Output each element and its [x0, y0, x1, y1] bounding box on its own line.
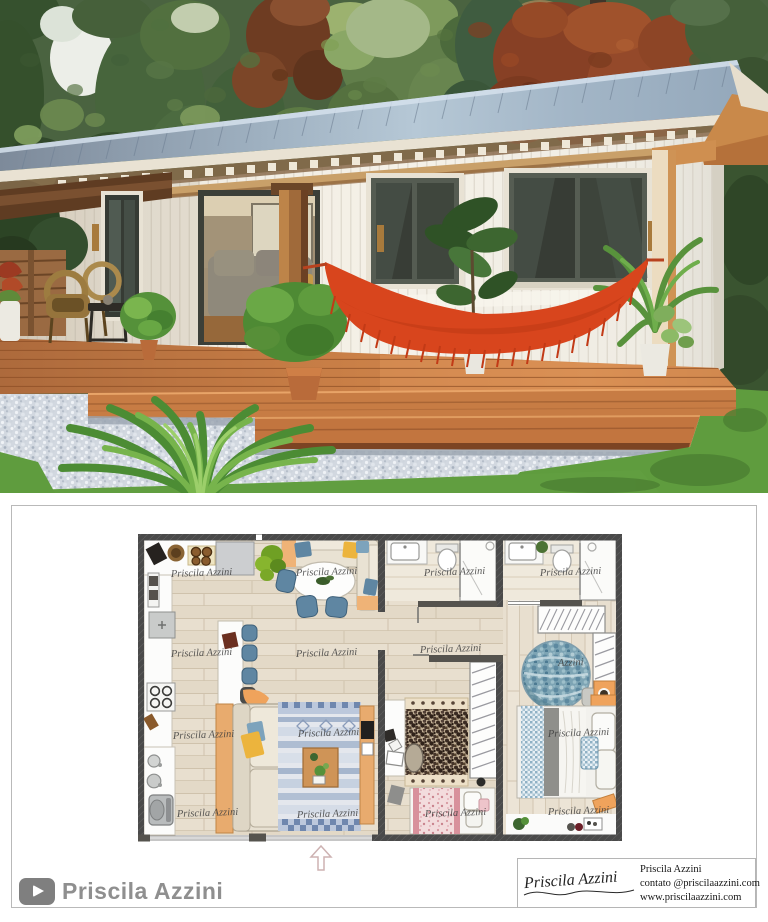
svg-text:Priscila Azzini: Priscila Azzini — [172, 729, 235, 742]
svg-text:Priscila Azzini: Priscila Azzini — [547, 727, 610, 740]
svg-text:Priscila Azzini: Priscila Azzini — [539, 566, 602, 579]
svg-text:Priscila Azzini: Priscila Azzini — [295, 566, 358, 579]
svg-text:Priscila Azzini: Priscila Azzini — [423, 566, 486, 579]
svg-text:Azzini: Azzini — [557, 657, 584, 669]
svg-text:Priscila Azzini: Priscila Azzini — [170, 567, 233, 580]
svg-text:Priscila Azzini: Priscila Azzini — [419, 643, 482, 656]
svg-text:Priscila Azzini: Priscila Azzini — [296, 808, 359, 821]
svg-text:Priscila Azzini: Priscila Azzini — [295, 647, 358, 660]
svg-text:Priscila Azzini: Priscila Azzini — [176, 807, 239, 820]
svg-text:Priscila Azzini: Priscila Azzini — [424, 807, 487, 820]
svg-text:Priscila Azzini: Priscila Azzini — [547, 805, 610, 818]
svg-text:Priscila Azzini: Priscila Azzini — [170, 647, 233, 660]
svg-text:Priscila Azzini: Priscila Azzini — [297, 727, 360, 740]
